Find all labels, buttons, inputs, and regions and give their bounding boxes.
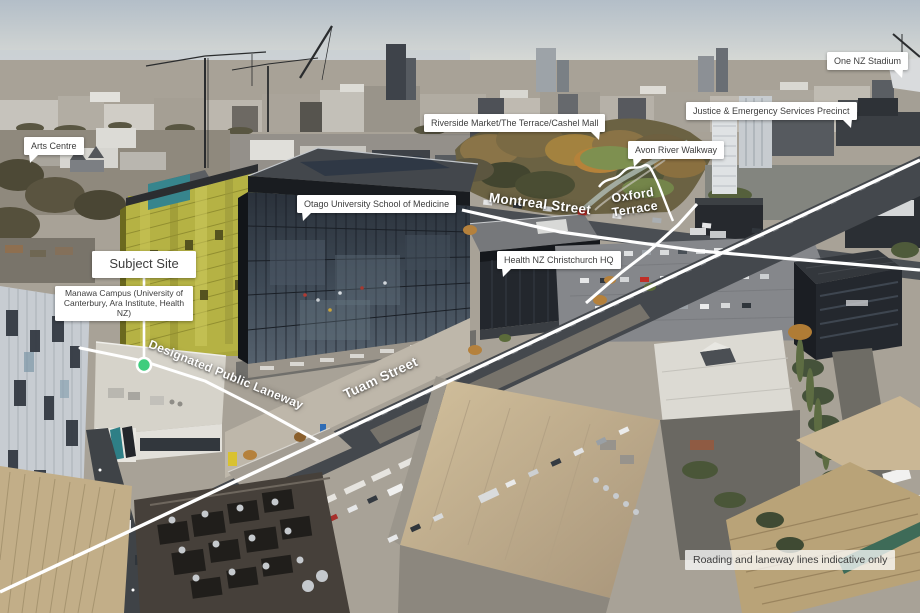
label-pointer xyxy=(842,119,852,128)
subject-site-marker xyxy=(137,358,151,372)
label-pointer xyxy=(502,268,512,277)
label-pointer xyxy=(302,212,312,221)
label-avon-river-walkway: Avon River Walkway xyxy=(628,141,724,159)
disclaimer-text: Roading and laneway lines indicative onl… xyxy=(693,554,887,566)
label-text: Avon River Walkway xyxy=(635,145,717,155)
label-pointer xyxy=(893,69,903,78)
label-justice-precinct: Justice & Emergency Services Precinct xyxy=(686,102,857,120)
label-pointer xyxy=(590,131,600,140)
label-text: Subject Site xyxy=(109,256,178,271)
label-one-nz-stadium: One NZ Stadium xyxy=(827,52,908,70)
label-text: Health NZ Christchurch HQ xyxy=(504,255,614,265)
disclaimer-note: Roading and laneway lines indicative onl… xyxy=(685,550,895,570)
label-text: Manawa Campus (University of Canterbury,… xyxy=(64,288,184,318)
label-text: One NZ Stadium xyxy=(834,56,901,66)
label-riverside-market: Riverside Market/The Terrace/Cashel Mall xyxy=(424,114,605,132)
label-text: Justice & Emergency Services Precinct xyxy=(693,106,850,116)
aerial-map: Arts Centre Riverside Market/The Terrace… xyxy=(0,0,920,613)
tuam-street-line xyxy=(0,160,920,592)
label-otago-medicine: Otago University School of Medicine xyxy=(297,195,456,213)
label-text: Otago University School of Medicine xyxy=(304,199,449,209)
label-pointer xyxy=(633,158,643,167)
label-text: Arts Centre xyxy=(31,141,77,151)
label-manawa-campus: Manawa Campus (University of Canterbury,… xyxy=(55,286,193,321)
label-pointer xyxy=(29,154,39,163)
label-arts-centre: Arts Centre xyxy=(24,137,84,155)
label-subject-site: Subject Site xyxy=(92,251,196,278)
label-health-nz-hq: Health NZ Christchurch HQ xyxy=(497,251,621,269)
label-text: Riverside Market/The Terrace/Cashel Mall xyxy=(431,118,598,128)
